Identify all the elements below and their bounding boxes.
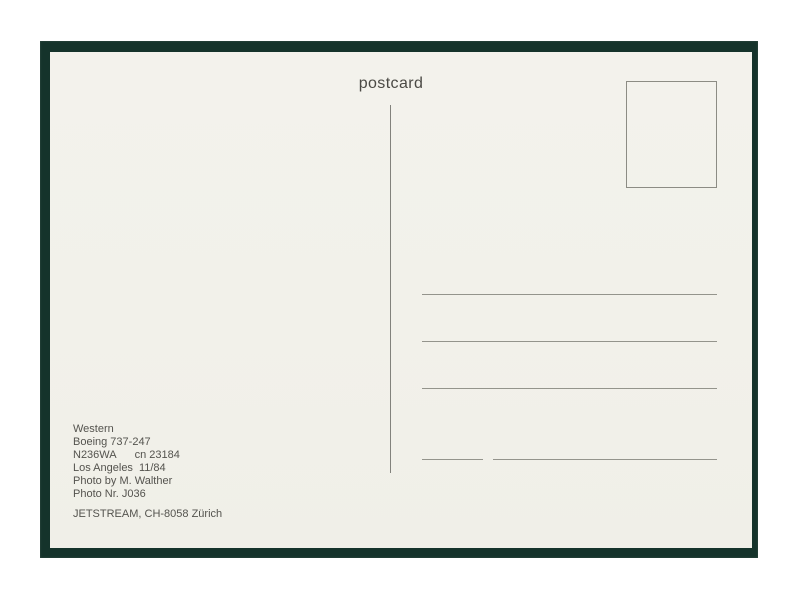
airline-name: Western <box>73 423 180 436</box>
photo-date: 11/84 <box>139 462 166 474</box>
address-line-3 <box>422 388 717 389</box>
postcard-scan-frame: postcard Western Boeing 737-247 N236WAcn… <box>40 41 758 558</box>
construction-number: cn 23184 <box>135 449 180 461</box>
stamp-box <box>626 81 717 188</box>
registration-row: N236WAcn 23184 <box>73 449 180 462</box>
photographer-credit: Photo by M. Walther <box>73 475 180 488</box>
postal-code-line <box>422 459 483 460</box>
photo-location: Los Angeles <box>73 462 133 474</box>
address-line-1 <box>422 294 717 295</box>
publisher-line: JETSTREAM, CH-8058 Zürich <box>73 508 222 521</box>
location-row: Los Angeles11/84 <box>73 462 180 475</box>
registration: N236WA <box>73 449 117 461</box>
address-line-2 <box>422 341 717 342</box>
postcard-back: postcard Western Boeing 737-247 N236WAcn… <box>50 52 752 548</box>
divider-line <box>390 105 391 473</box>
aircraft-type: Boeing 737-247 <box>73 436 180 449</box>
scanner-page-background: { "scan": { "title": "postcard", "photo_… <box>0 0 800 600</box>
address-line-4 <box>493 459 717 460</box>
photo-number: Photo Nr. J036 <box>73 488 180 501</box>
photo-info-block: Western Boeing 737-247 N236WAcn 23184 Lo… <box>73 423 180 501</box>
